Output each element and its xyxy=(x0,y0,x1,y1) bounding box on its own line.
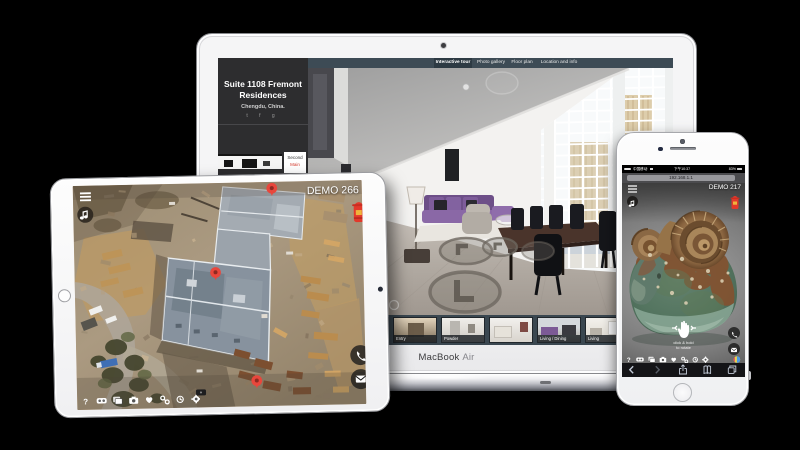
svg-text:?: ? xyxy=(83,397,88,406)
